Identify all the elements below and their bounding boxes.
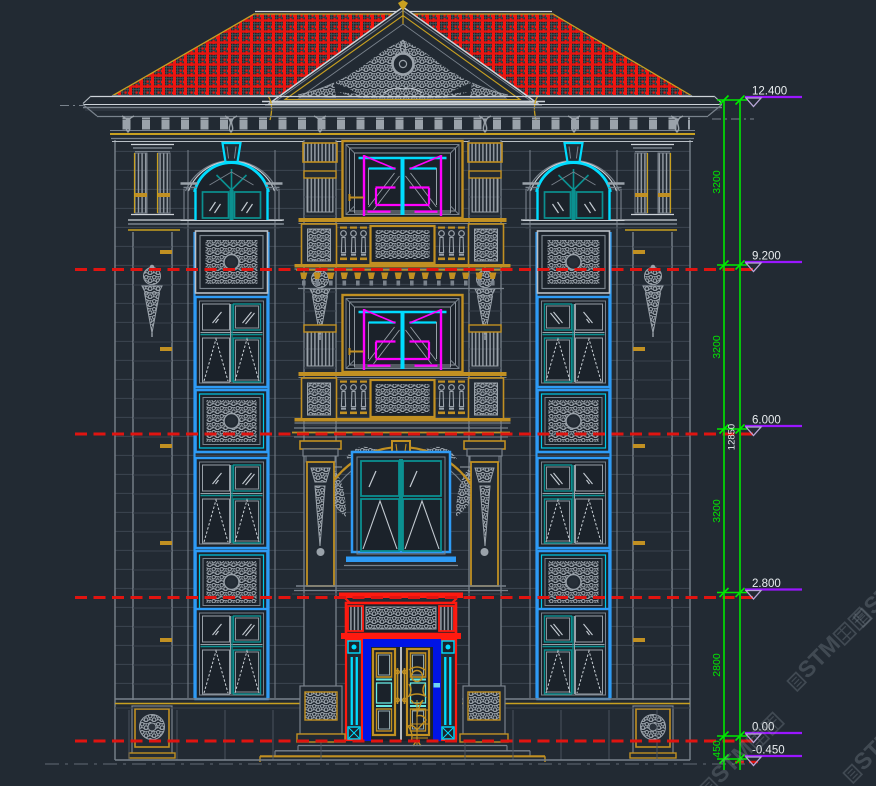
svg-text:6.000: 6.000 (752, 415, 781, 427)
svg-text:3200: 3200 (711, 335, 723, 359)
svg-text:3200: 3200 (711, 499, 723, 523)
svg-text:2.800: 2.800 (752, 578, 781, 590)
svg-text:9.200: 9.200 (752, 251, 781, 263)
svg-text:12850: 12850 (727, 424, 738, 450)
svg-text:3200: 3200 (711, 170, 723, 194)
svg-text:2800: 2800 (711, 653, 723, 677)
svg-text:12.400: 12.400 (752, 86, 787, 98)
